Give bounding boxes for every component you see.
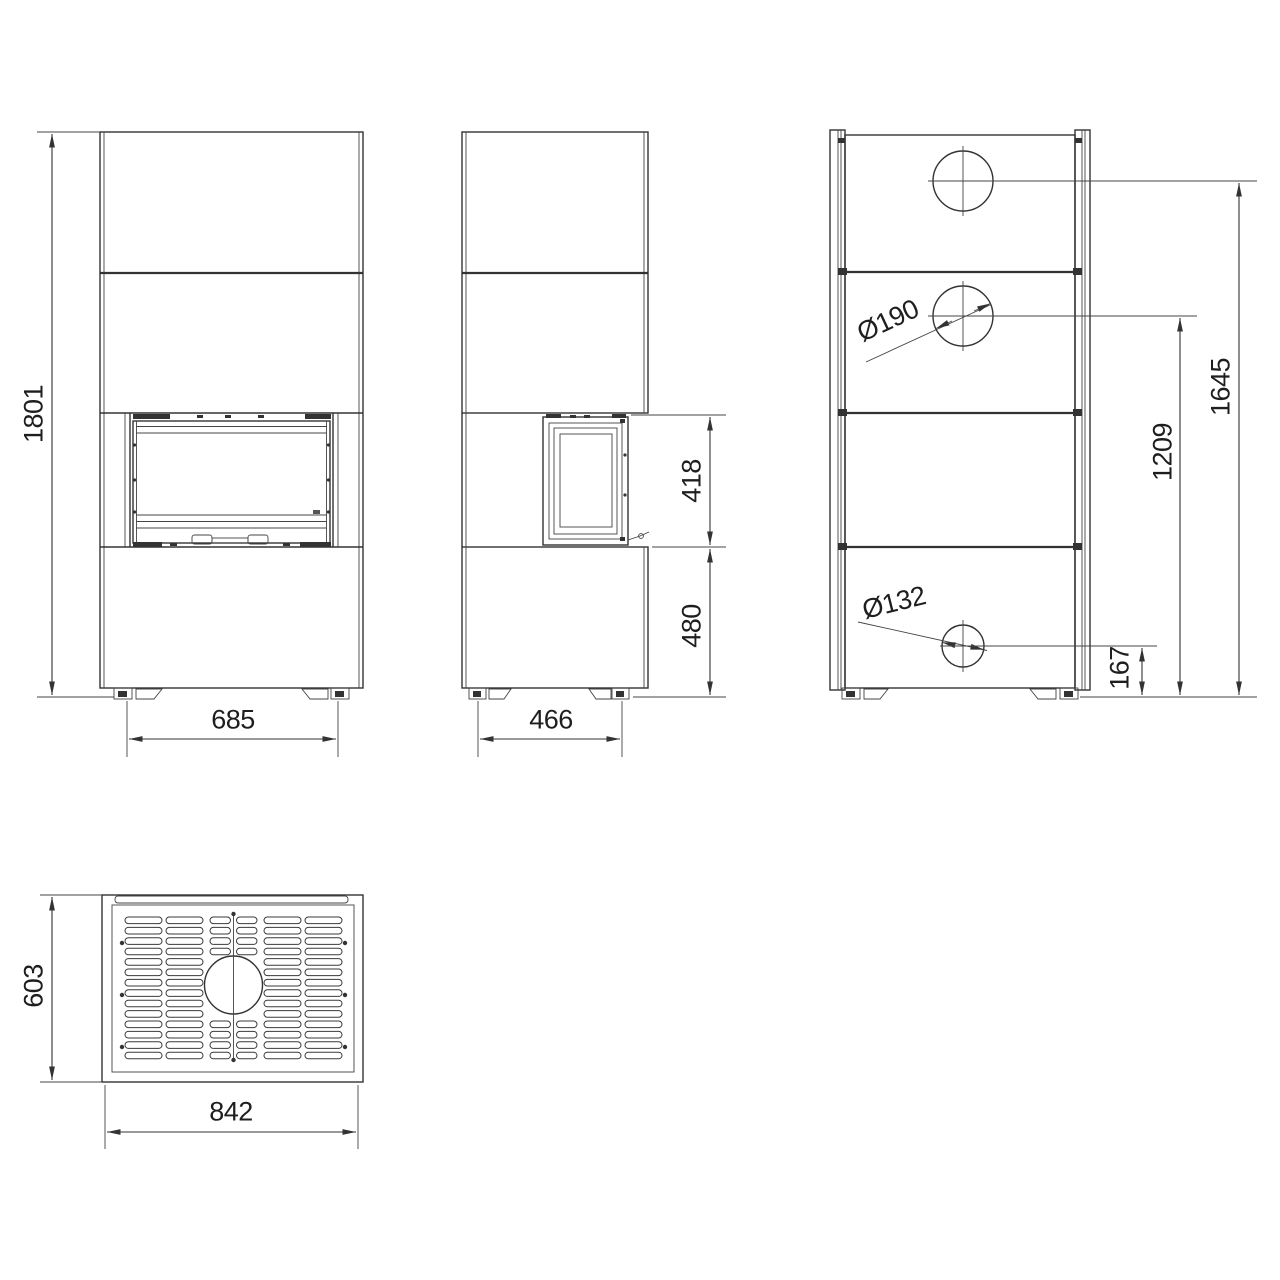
grille-slot xyxy=(125,969,162,976)
grille-slot xyxy=(305,969,342,976)
grille-slot xyxy=(166,948,203,955)
grille-slot xyxy=(264,1042,301,1049)
grille-slot xyxy=(264,979,301,986)
grille-slot xyxy=(305,990,342,997)
grille-slot xyxy=(125,1052,162,1059)
grille-slot xyxy=(210,1031,231,1038)
front-view xyxy=(100,132,363,699)
label-top-width: 842 xyxy=(209,1097,253,1128)
grille-slot xyxy=(166,959,203,966)
grille-slot xyxy=(237,1042,258,1049)
grille-slot xyxy=(237,1021,258,1028)
grille-slot xyxy=(166,1052,203,1059)
grille-slot xyxy=(305,1011,342,1018)
grille-slot xyxy=(166,969,203,976)
grille-slot xyxy=(264,1021,301,1028)
grille-slot xyxy=(166,1000,203,1007)
side-feet xyxy=(469,688,629,699)
label-base-height: 480 xyxy=(677,604,708,648)
grille-slot xyxy=(210,938,231,945)
grille-slot xyxy=(166,917,203,924)
grille-slot xyxy=(264,959,301,966)
grille-slot xyxy=(305,1021,342,1028)
label-rear-flue-lower-height: 167 xyxy=(1105,646,1136,690)
grille-slot xyxy=(125,979,162,986)
grille-slot xyxy=(305,948,342,955)
label-side-feet-spacing: 466 xyxy=(529,705,573,736)
grille-slot xyxy=(305,927,342,934)
label-front-feet-spacing: 685 xyxy=(211,705,255,736)
grille-slot xyxy=(166,1031,203,1038)
grille-slot xyxy=(125,1042,162,1049)
grille-slot xyxy=(237,927,258,934)
grille-slot xyxy=(125,1011,162,1018)
grille-slot xyxy=(305,1031,342,1038)
grille-slot xyxy=(125,917,162,924)
grille-slot xyxy=(210,1042,231,1049)
grille-slot xyxy=(125,1031,162,1038)
grille-slot xyxy=(125,990,162,997)
grille-slot xyxy=(166,1021,203,1028)
grille-slot xyxy=(210,1021,231,1028)
grille-slot xyxy=(264,1052,301,1059)
grille-slot xyxy=(305,979,342,986)
grille-slot xyxy=(305,959,342,966)
grille-slot xyxy=(166,979,203,986)
grille-slot xyxy=(125,938,162,945)
grille-slot xyxy=(264,990,301,997)
grille-slot xyxy=(210,927,231,934)
grille-slot xyxy=(125,959,162,966)
grille-slot xyxy=(237,1031,258,1038)
technical-drawing xyxy=(0,0,1280,1280)
firebox-door-side xyxy=(543,414,649,545)
grille-slot xyxy=(125,1021,162,1028)
grille-slot xyxy=(210,917,231,924)
grille-slot xyxy=(125,927,162,934)
grille-slot xyxy=(264,969,301,976)
top-view xyxy=(102,895,363,1082)
grille-slot xyxy=(264,1000,301,1007)
rear-feet xyxy=(842,688,1078,699)
grille-slot xyxy=(210,948,231,955)
label-overall-height: 1801 xyxy=(19,385,50,443)
grille-slot xyxy=(125,1000,162,1007)
grille-slot xyxy=(125,948,162,955)
grille-slot xyxy=(166,1042,203,1049)
grille-slot xyxy=(264,1031,301,1038)
grille-slot xyxy=(305,938,342,945)
grille-slot xyxy=(237,938,258,945)
grille-slot xyxy=(264,927,301,934)
label-top-depth: 603 xyxy=(19,964,50,1008)
grille-slot xyxy=(237,948,258,955)
glass-logo-mark xyxy=(313,510,320,514)
label-top-flue-center-height: 1645 xyxy=(1206,358,1237,416)
grille-slot xyxy=(166,927,203,934)
grille-slot xyxy=(264,917,301,924)
grille-slot xyxy=(264,1011,301,1018)
drawing-canvas: 1801 685 418 480 466 Ø190 Ø132 1645 1209… xyxy=(0,0,1280,1280)
grille-slot xyxy=(305,1000,342,1007)
dimension-lines xyxy=(37,132,1257,1149)
grille-slot xyxy=(305,1052,342,1059)
grille-slot xyxy=(264,938,301,945)
grille-slot xyxy=(166,990,203,997)
grille-slot xyxy=(237,1052,258,1059)
grille-slot xyxy=(305,1042,342,1049)
grille-slot xyxy=(305,917,342,924)
firebox-door-front xyxy=(133,414,331,547)
grille-slot xyxy=(264,948,301,955)
grille-slot xyxy=(237,917,258,924)
grille-slot xyxy=(210,1052,231,1059)
front-feet xyxy=(114,688,349,699)
grille-slot xyxy=(166,938,203,945)
label-firebox-height: 418 xyxy=(677,459,708,503)
label-rear-flue-upper-height: 1209 xyxy=(1148,423,1179,481)
side-view xyxy=(462,132,649,699)
grille-slot xyxy=(166,1011,203,1018)
